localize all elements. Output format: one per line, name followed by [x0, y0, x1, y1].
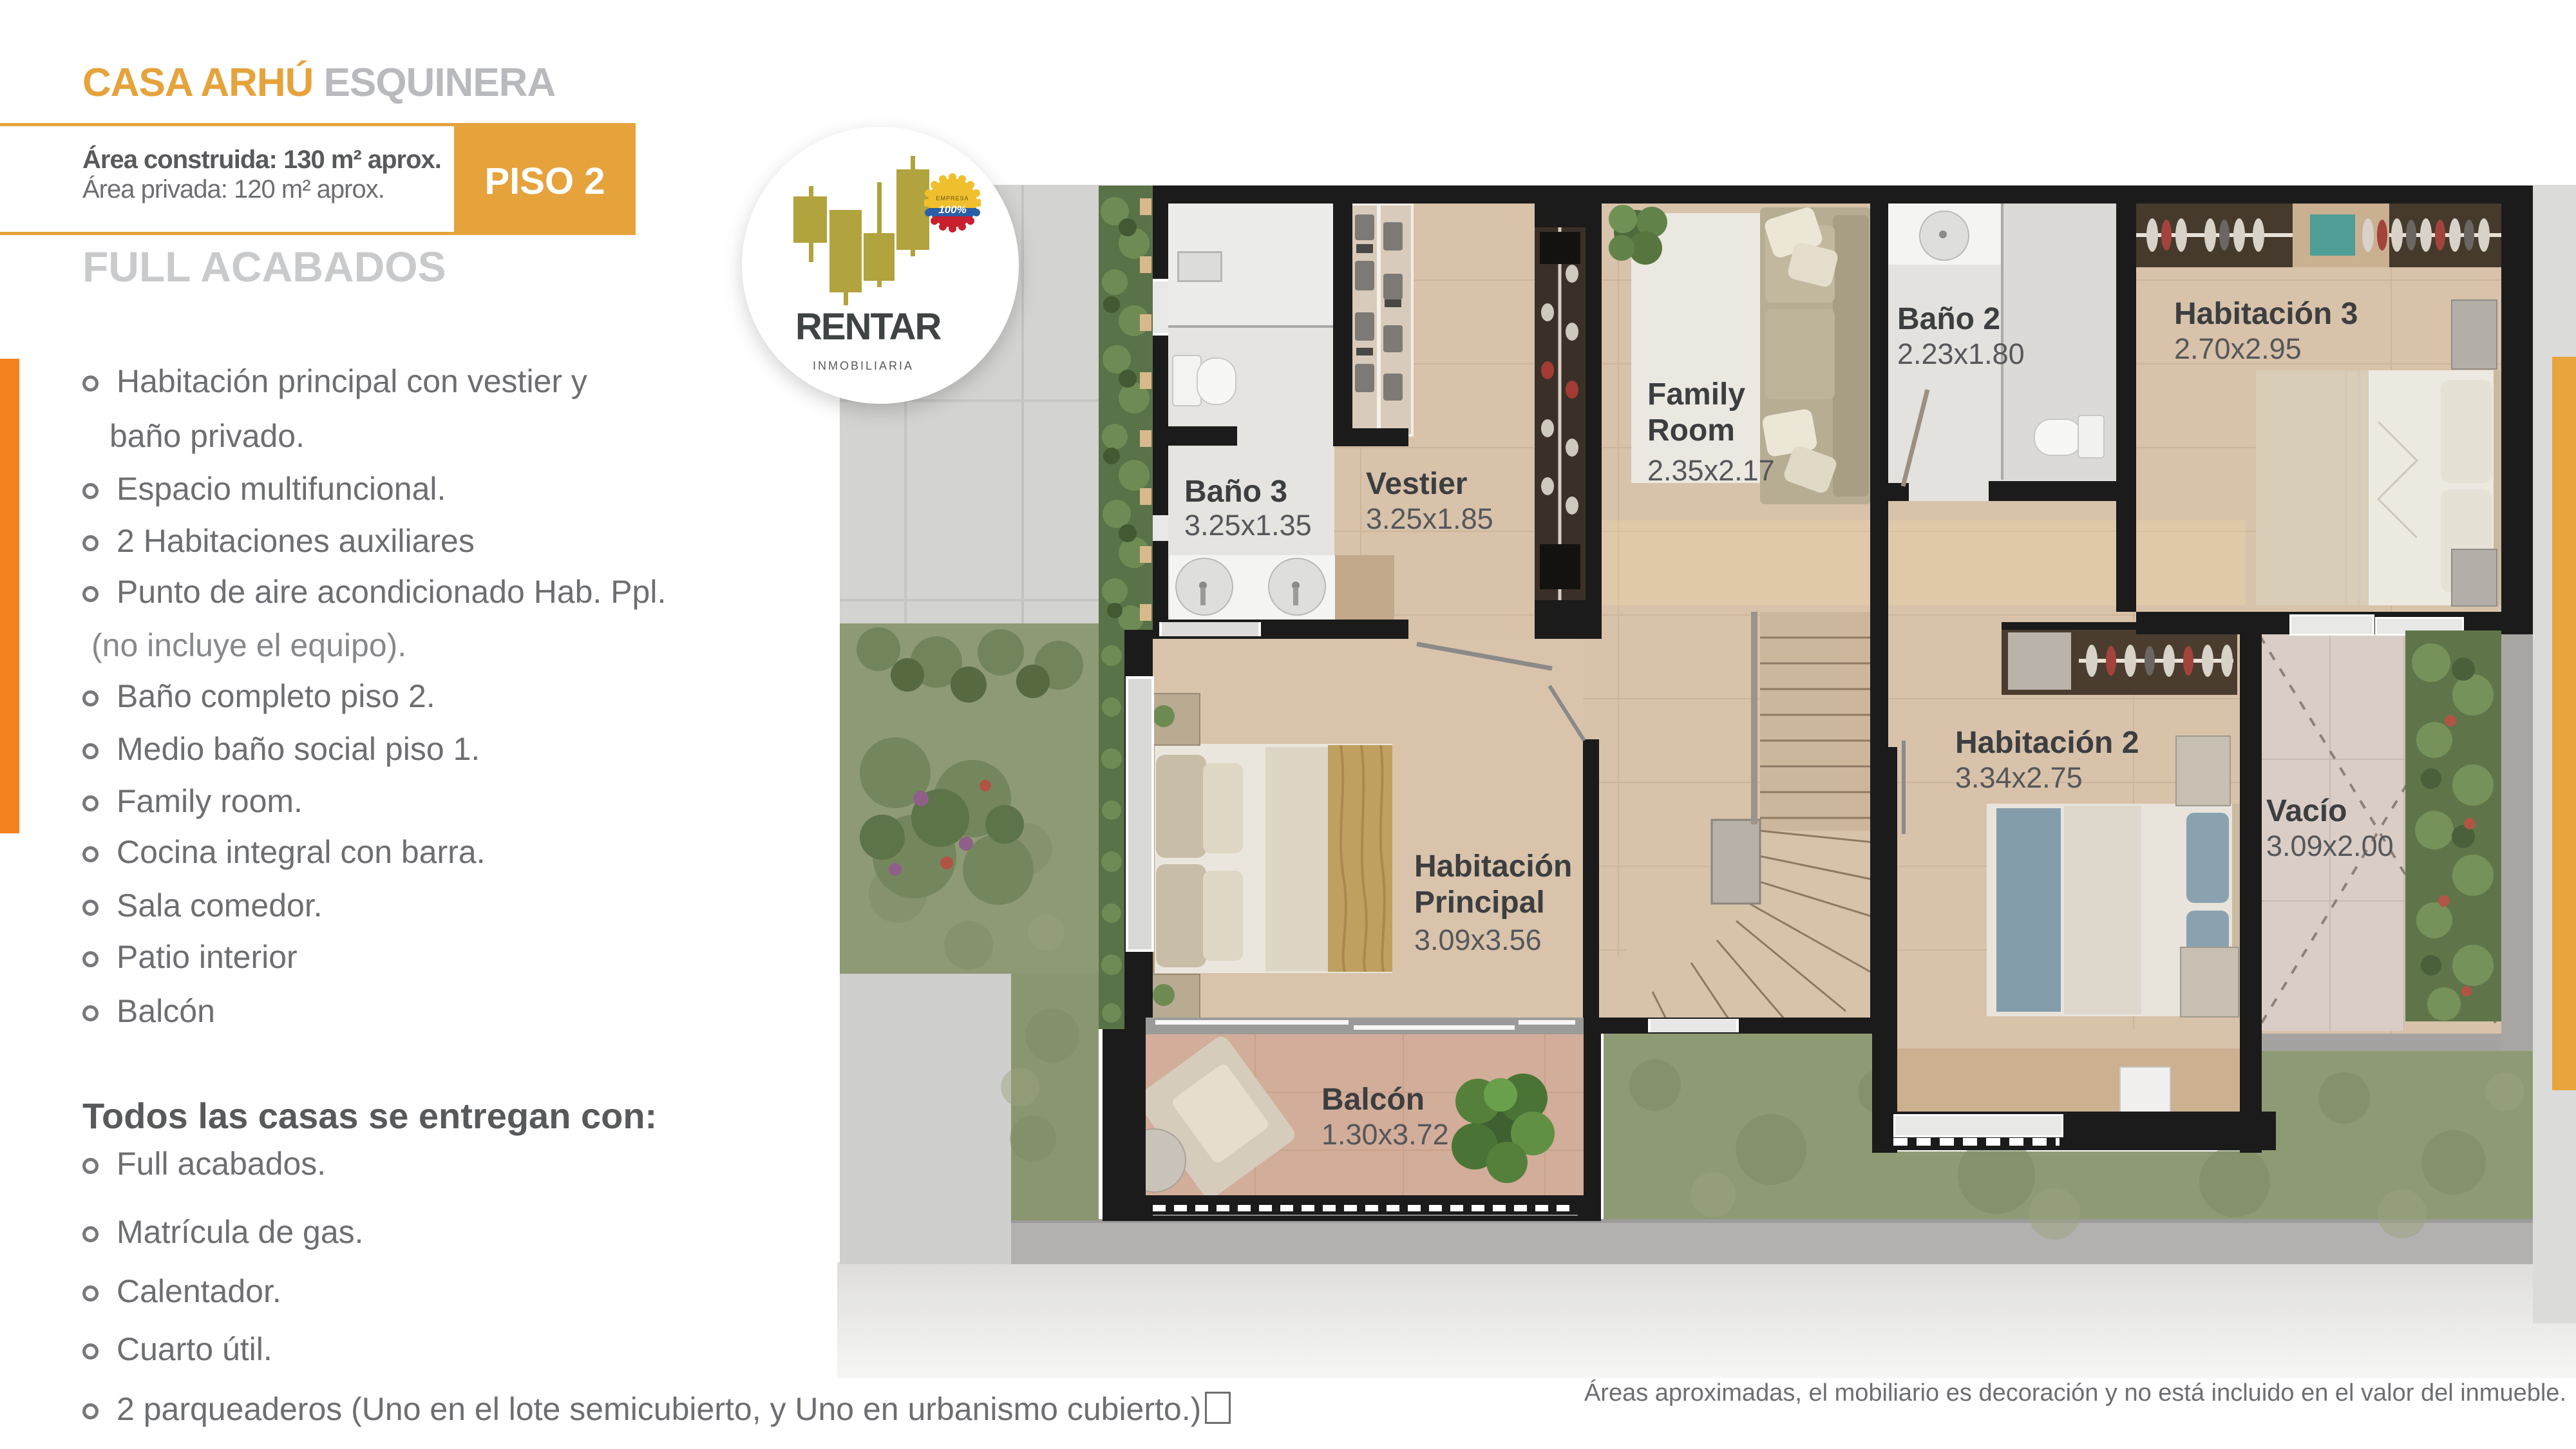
svg-text:100%: 100%: [938, 204, 966, 216]
svg-text:INMOBILIARIA: INMOBILIARIA: [813, 359, 914, 372]
svg-text:RENTAR: RENTAR: [795, 306, 941, 348]
svg-text:EMPRESA: EMPRESA: [936, 195, 969, 202]
